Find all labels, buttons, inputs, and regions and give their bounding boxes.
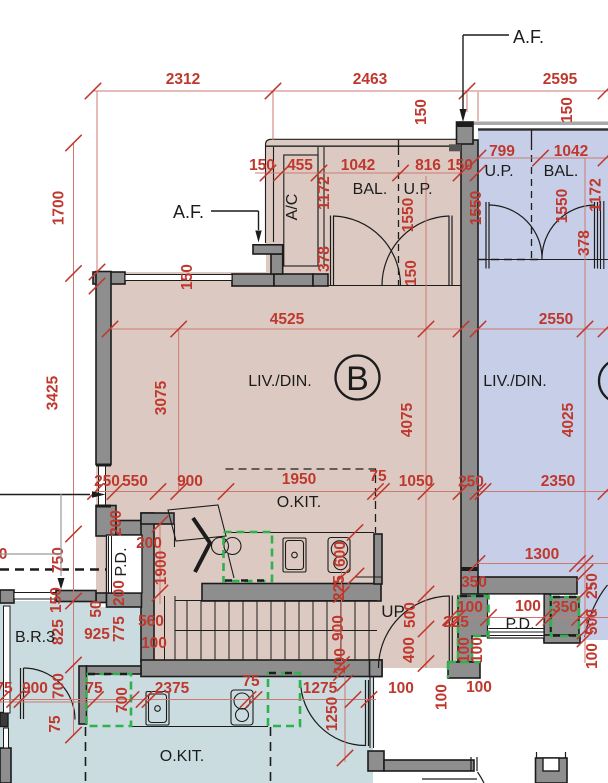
svg-text:P.D.: P.D. [505, 616, 534, 633]
svg-text:150: 150 [179, 264, 196, 290]
svg-text:1042: 1042 [554, 143, 588, 160]
svg-text:1700: 1700 [51, 191, 68, 225]
svg-text:150: 150 [403, 260, 420, 286]
svg-text:B: B [346, 360, 369, 398]
svg-text:378: 378 [316, 246, 333, 272]
svg-text:900: 900 [22, 680, 48, 697]
svg-text:1950: 1950 [282, 471, 316, 488]
svg-text:2595: 2595 [543, 71, 578, 88]
svg-text:250: 250 [458, 474, 484, 491]
svg-text:1172: 1172 [588, 178, 605, 212]
svg-text:150: 150 [48, 587, 65, 613]
svg-text:A.F.: A.F. [513, 27, 544, 47]
svg-text:200: 200 [108, 510, 125, 536]
svg-text:75: 75 [85, 680, 103, 697]
svg-text:900: 900 [177, 473, 203, 490]
svg-text:1172: 1172 [316, 176, 333, 210]
svg-text:2463: 2463 [353, 71, 388, 88]
svg-text:75: 75 [0, 680, 13, 697]
svg-text:BAL.: BAL. [544, 163, 579, 180]
svg-text:A.F.: A.F. [173, 202, 204, 222]
svg-text:LIV./DIN.: LIV./DIN. [483, 373, 546, 390]
svg-text:560: 560 [138, 613, 164, 630]
svg-text:150: 150 [559, 97, 576, 123]
svg-text:U.P.: U.P. [403, 181, 432, 198]
svg-text:750: 750 [50, 547, 67, 573]
svg-text:150: 150 [413, 99, 430, 125]
svg-text:250: 250 [584, 573, 601, 599]
svg-text:100: 100 [515, 598, 541, 615]
svg-text:2550: 2550 [539, 311, 573, 328]
svg-text:75: 75 [369, 468, 387, 485]
svg-text:P.D.: P.D. [113, 547, 130, 576]
svg-text:3075: 3075 [153, 380, 170, 415]
svg-text:O.KIT.: O.KIT. [160, 748, 204, 765]
svg-text:LIV./DIN.: LIV./DIN. [248, 373, 311, 390]
svg-text:75: 75 [47, 715, 64, 733]
svg-text:100: 100 [388, 680, 414, 697]
svg-text:1550: 1550 [554, 189, 571, 223]
svg-text:400: 400 [401, 637, 418, 663]
svg-text:2375: 2375 [155, 680, 190, 697]
svg-text:4075: 4075 [399, 402, 416, 437]
svg-text:1300: 1300 [525, 546, 559, 563]
svg-text:1050: 1050 [399, 473, 433, 490]
svg-text:1275: 1275 [303, 680, 338, 697]
svg-text:925: 925 [84, 626, 110, 643]
svg-text:BAL.: BAL. [353, 181, 388, 198]
svg-text:378: 378 [576, 230, 593, 256]
svg-text:2350: 2350 [541, 473, 575, 490]
svg-text:700: 700 [51, 673, 68, 699]
svg-text:455: 455 [287, 157, 313, 174]
svg-text:350: 350 [552, 599, 578, 616]
svg-text:225: 225 [331, 575, 348, 601]
svg-text:B.R.3: B.R.3 [15, 629, 55, 646]
svg-text:150: 150 [249, 157, 275, 174]
svg-text:1900: 1900 [153, 551, 170, 585]
svg-text:600: 600 [332, 541, 349, 567]
svg-text:150: 150 [447, 157, 473, 174]
svg-text:1550: 1550 [400, 198, 417, 232]
svg-text:350: 350 [461, 574, 487, 591]
svg-text:4025: 4025 [560, 402, 577, 437]
svg-text:775: 775 [111, 616, 128, 642]
svg-text:1042: 1042 [341, 157, 375, 174]
svg-text:A/C: A/C [284, 194, 301, 221]
svg-text:75: 75 [242, 673, 260, 690]
svg-text:100: 100 [141, 635, 167, 652]
svg-text:1250: 1250 [324, 697, 341, 731]
svg-text:100: 100 [584, 643, 601, 669]
svg-text:550: 550 [122, 473, 148, 490]
svg-text:UP: UP [381, 602, 405, 621]
svg-text:700: 700 [114, 687, 131, 713]
svg-text:900: 900 [330, 615, 347, 641]
svg-text:225: 225 [443, 614, 469, 631]
svg-text:200: 200 [111, 580, 128, 606]
svg-text:100: 100 [469, 637, 486, 663]
svg-text:1550: 1550 [468, 191, 485, 225]
svg-text:799: 799 [489, 143, 515, 160]
svg-text:200: 200 [136, 535, 162, 552]
svg-text:100: 100 [466, 679, 492, 696]
svg-text:4525: 4525 [270, 311, 305, 328]
svg-text:O.KIT.: O.KIT. [277, 494, 321, 511]
svg-text:100: 100 [332, 648, 349, 674]
svg-text:250: 250 [94, 473, 120, 490]
svg-text:100: 100 [434, 684, 451, 710]
svg-text:3425: 3425 [45, 375, 62, 410]
svg-text:50: 50 [88, 600, 105, 617]
svg-text:U.P.: U.P. [484, 163, 513, 180]
svg-text:2312: 2312 [166, 71, 200, 88]
svg-text:816: 816 [415, 157, 441, 174]
svg-text:500: 500 [584, 609, 601, 635]
